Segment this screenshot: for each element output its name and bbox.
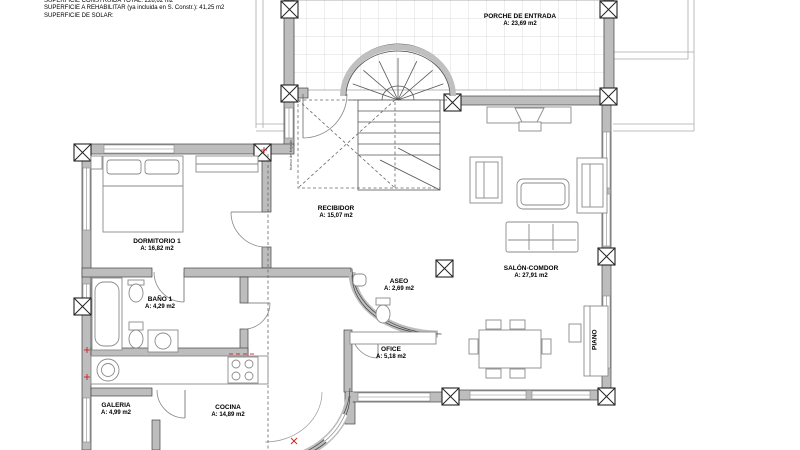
- room-name: DORMITORIO 1: [133, 238, 181, 246]
- bed: [103, 156, 183, 232]
- stair-void-label: hueco de forjado: [288, 110, 293, 170]
- wardrobe: [196, 156, 258, 172]
- piano-label: PIANO: [583, 306, 607, 374]
- stove: [228, 357, 258, 383]
- room-name: COCINA: [211, 404, 244, 412]
- room-area: A: 15,07 m2: [318, 213, 354, 220]
- room-area: A: 23,69 m2: [484, 21, 556, 28]
- room-area: A: 27,91 m2: [504, 273, 559, 280]
- piano-stool: [569, 324, 581, 342]
- tv-unit: [487, 107, 571, 131]
- room-area: A: 4,99 m2: [101, 410, 131, 417]
- bathtub: [92, 278, 122, 350]
- corner-sink: [353, 274, 366, 286]
- room-name: OFICE: [376, 346, 406, 354]
- room-name: BAÑO 1: [145, 296, 175, 304]
- room-area: A: 4,29 m2: [145, 304, 175, 311]
- surface-summary: SUPERFICIE CONSTRUIDA TOTAL: 228,62 m2 S…: [44, 0, 224, 20]
- room-label-porche: PORCHE DE ENTRADA A: 23,69 m2: [484, 13, 556, 28]
- bath-sink: [128, 280, 144, 302]
- room-label-galeria: GALERIA A: 4,99 m2: [101, 402, 131, 417]
- room-label-dormitorio1: DORMITORIO 1 A: 16,82 m2: [133, 238, 181, 253]
- room-area: A: 2,69 m2: [384, 286, 414, 293]
- wash-basin: [148, 330, 178, 352]
- ofice-counter: [350, 332, 436, 344]
- room-label-recibidor: RECIBIDOR A: 15,07 m2: [318, 205, 354, 220]
- room-name: ASEO: [384, 278, 414, 286]
- armchair-right: [577, 158, 607, 213]
- room-label-salon-comdor: SALÓN-COMDOR A: 27,91 m2: [504, 265, 559, 280]
- surface-rehab: SUPERFICIE A REHABILITAR (ya incluida en…: [44, 5, 224, 12]
- room-name: PORCHE DE ENTRADA: [484, 13, 556, 21]
- toilet-aseo: [376, 298, 390, 323]
- kitchen-counter: [91, 356, 268, 384]
- sofa: [506, 222, 578, 252]
- room-area: A: 16,82 m2: [133, 246, 181, 253]
- room-label-aseo: ASEO A: 2,69 m2: [384, 278, 414, 293]
- armchair-left: [470, 157, 502, 203]
- room-name: RECIBIDOR: [318, 205, 354, 213]
- room-label-cocina: COCINA A: 14,89 m2: [211, 404, 244, 419]
- room-area: A: 5,18 m2: [376, 354, 406, 361]
- room-label-ofice: OFICE A: 5,18 m2: [376, 346, 406, 361]
- dining-table-set: [469, 320, 551, 378]
- toilet-bath: [129, 322, 143, 348]
- room-name: SALÓN-COMDOR: [504, 265, 559, 273]
- floor-plan-canvas: SUPERFICIE CONSTRUIDA TOTAL: 228,62 m2 S…: [0, 0, 800, 450]
- staircase: [341, 44, 455, 190]
- room-label-bano1: BAÑO 1 A: 4,29 m2: [145, 296, 175, 311]
- nightstand: [91, 156, 102, 169]
- floor-plan-drawing: [0, 0, 800, 450]
- surface-solar: SUPERFICIE DE SOLAR:: [44, 13, 224, 20]
- room-area: A: 14,89 m2: [211, 412, 244, 419]
- room-name: GALERIA: [101, 402, 131, 410]
